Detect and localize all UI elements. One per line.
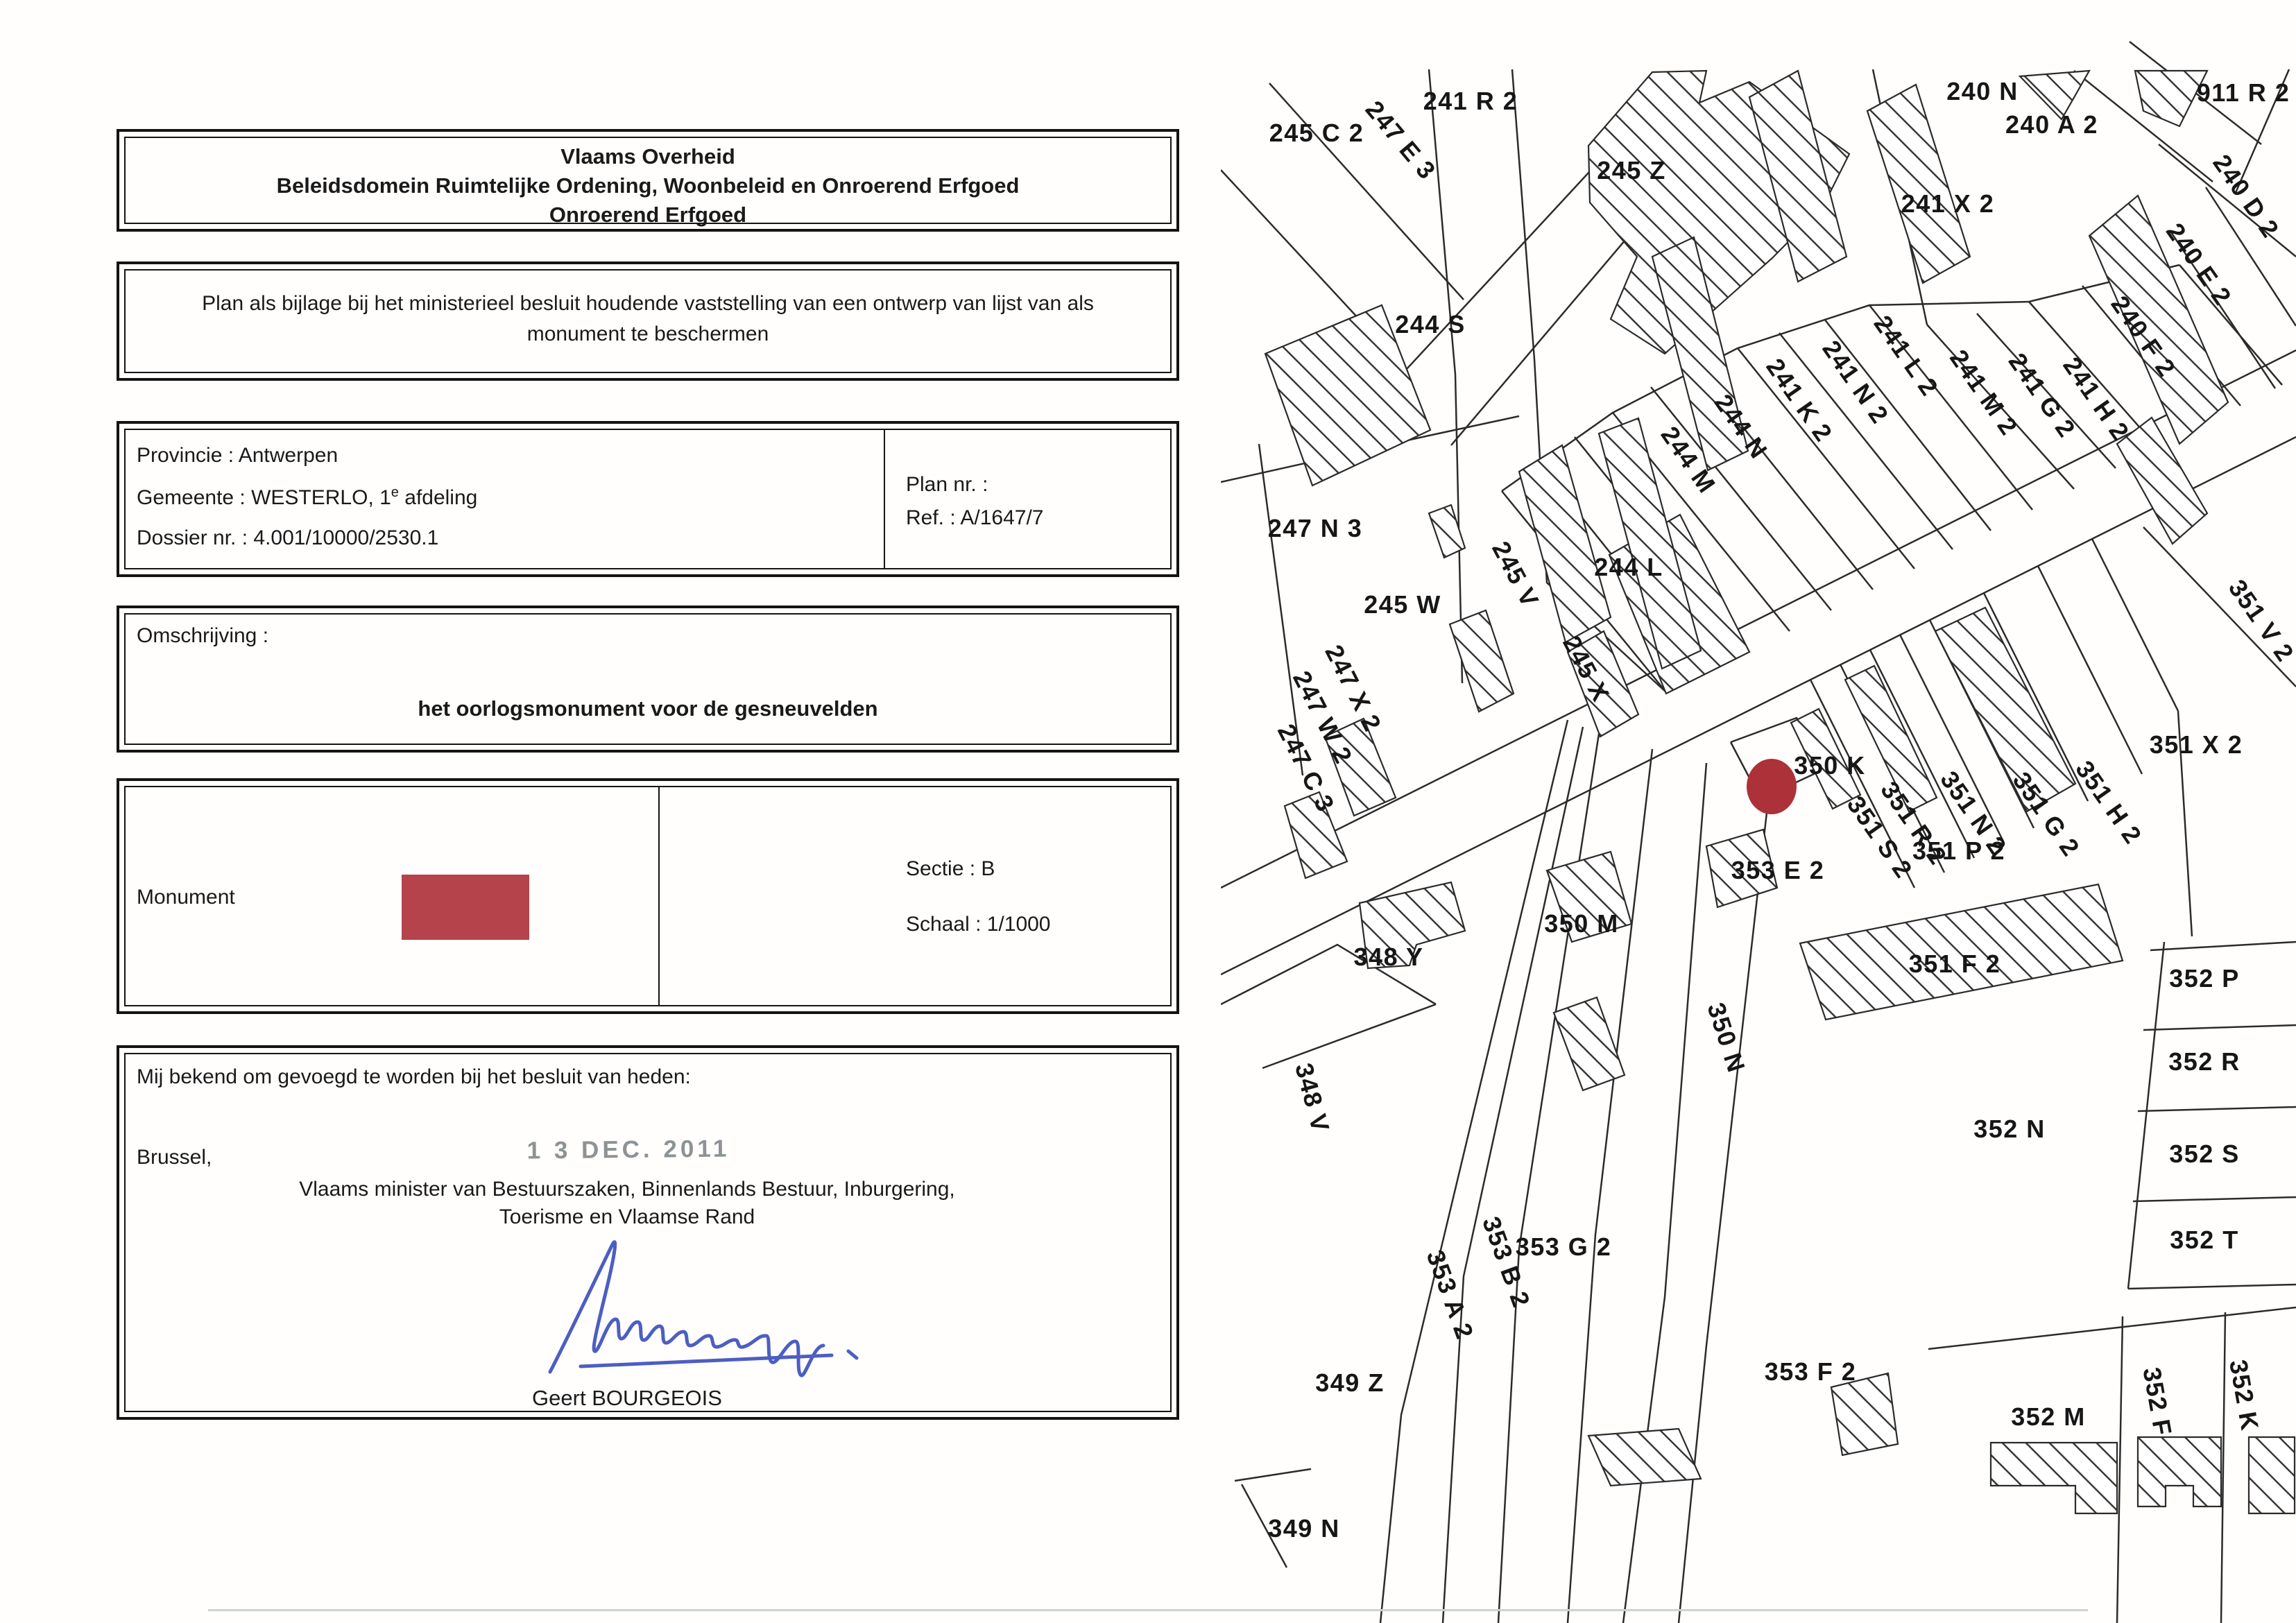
details-right-cell: Plan nr. : Ref. : A/1647/7 bbox=[885, 430, 1170, 568]
parcel-label: 240 D 2 bbox=[2207, 149, 2285, 243]
provincie-text: Provincie : Antwerpen bbox=[137, 444, 884, 467]
header-line-3: Onroerend Erfgoed bbox=[126, 200, 1170, 230]
header-line-1: Vlaams Overheid bbox=[126, 142, 1170, 171]
monument-color-swatch bbox=[402, 875, 529, 940]
parcel-label: 352 F bbox=[2137, 1365, 2177, 1438]
details-left-cell: Provincie : Antwerpen Gemeente : WESTERL… bbox=[126, 430, 885, 568]
parcel-label: 349 N bbox=[1268, 1514, 1340, 1543]
header-box: Vlaams Overheid Beleidsdomein Ruimtelijk… bbox=[117, 129, 1179, 232]
gemeente-text: Gemeente : WESTERLO, 1e afdeling bbox=[137, 485, 884, 510]
parcel-label: 352 M bbox=[2011, 1402, 2086, 1431]
parcel-label: 351 P 2 bbox=[1912, 836, 2005, 865]
parcel-label: 352 N bbox=[1973, 1115, 2046, 1143]
parcel-label: 348 V bbox=[1290, 1060, 1335, 1135]
parcel-label: 244 S bbox=[1395, 310, 1466, 338]
legend-right-cell: Sectie : B Schaal : 1/1000 bbox=[906, 841, 1051, 952]
parcel-label: 241 L 2 bbox=[1869, 310, 1944, 402]
plan-nr-text: Plan nr. : bbox=[906, 473, 1170, 497]
parcel-label: 245 Z bbox=[1597, 156, 1666, 184]
signing-intro: Mij bekend om gevoegd te worden bij het … bbox=[137, 1065, 691, 1089]
parcel-label: 241 R 2 bbox=[1423, 87, 1518, 115]
schaal-text: Schaal : 1/1000 bbox=[906, 897, 1051, 952]
minister-title-line-2: Toerisme en Vlaamse Rand bbox=[126, 1205, 1129, 1229]
parcel-label: 241 X 2 bbox=[1901, 189, 1995, 218]
dossier-text: Dossier nr. : 4.001/10000/2530.1 bbox=[137, 526, 884, 550]
parcel-label: 241 K 2 bbox=[1760, 353, 1838, 447]
parcel-label: 244 L bbox=[1594, 553, 1663, 581]
parcel-label: 911 R 2 bbox=[2197, 78, 2290, 107]
scanned-document-page: Vlaams Overheid Beleidsdomein Ruimtelijk… bbox=[0, 0, 2296, 1623]
minister-title-line-1: Vlaams minister van Bestuurszaken, Binne… bbox=[126, 1178, 1129, 1201]
signer-name: Geert BOURGEOIS bbox=[126, 1386, 1129, 1411]
parcel-label: 353 G 2 bbox=[1516, 1233, 1612, 1261]
plan-note-line-1: Plan als bijlage bij het ministerieel be… bbox=[126, 289, 1170, 319]
parcel-label: 352 R bbox=[2168, 1047, 2241, 1076]
parcel-label: 353 B 2 bbox=[1477, 1213, 1536, 1312]
parcel-label: 352 P bbox=[2169, 964, 2240, 993]
parcel-label: 240 A 2 bbox=[2005, 110, 2098, 139]
parcel-label: 245 V bbox=[1487, 537, 1545, 612]
scan-edge-line bbox=[208, 1609, 2088, 1611]
legend-box: Monument Sectie : B Schaal : 1/1000 bbox=[117, 778, 1179, 1014]
signing-box: Mij bekend om gevoegd te worden bij het … bbox=[117, 1045, 1179, 1420]
monument-label: Monument bbox=[137, 886, 235, 909]
ref-text: Ref. : A/1647/7 bbox=[906, 506, 1170, 530]
parcel-label: 240 N bbox=[1946, 77, 2019, 105]
omschrijving-box: Omschrijving : het oorlogsmonument voor … bbox=[117, 606, 1179, 753]
monument-dot bbox=[1747, 759, 1797, 814]
cadastral-map: 245 C 2247 E 3241 R 2245 Z240 N240 A 291… bbox=[1221, 28, 2296, 1623]
parcel-label: 247 N 3 bbox=[1268, 514, 1363, 542]
parcel-label: 353 E 2 bbox=[1731, 856, 1825, 884]
plan-note-box: Plan als bijlage bij het ministerieel be… bbox=[117, 261, 1179, 381]
parcel-label: 245 W bbox=[1364, 590, 1441, 619]
parcel-label: 348 Y bbox=[1354, 943, 1424, 971]
omschrijving-value: het oorlogsmonument voor de gesneuvelden bbox=[126, 696, 1170, 721]
signing-place: Brussel, bbox=[137, 1146, 212, 1169]
parcel-label: 352 S bbox=[2169, 1140, 2240, 1168]
parcel-label: 352 K bbox=[2224, 1357, 2264, 1433]
parcel-label: 353 F 2 bbox=[1765, 1357, 1857, 1386]
legend-divider bbox=[658, 787, 660, 1005]
date-stamp: 1 3 DEC. 2011 bbox=[493, 1135, 764, 1165]
parcel-label: 352 T bbox=[2170, 1226, 2239, 1254]
plan-note-line-2: monument te beschermen bbox=[126, 319, 1170, 350]
signature-scribble bbox=[535, 1233, 923, 1386]
parcel-label: 245 C 2 bbox=[1269, 119, 1364, 147]
parcel-label: 350 M bbox=[1544, 909, 1619, 938]
parcel-label: 350 K bbox=[1794, 751, 1866, 780]
details-box: Provincie : Antwerpen Gemeente : WESTERL… bbox=[117, 421, 1179, 577]
omschrijving-label: Omschrijving : bbox=[137, 624, 268, 648]
header-line-2: Beleidsdomein Ruimtelijke Ordening, Woon… bbox=[126, 171, 1170, 200]
parcel-label: 241 N 2 bbox=[1817, 335, 1894, 429]
parcel-label: 351 X 2 bbox=[2150, 730, 2243, 759]
sectie-text: Sectie : B bbox=[906, 841, 1051, 897]
parcel-label: 351 H 2 bbox=[2070, 755, 2148, 849]
parcel-label: 349 Z bbox=[1315, 1368, 1385, 1397]
parcel-label: 351 F 2 bbox=[1909, 950, 2001, 978]
